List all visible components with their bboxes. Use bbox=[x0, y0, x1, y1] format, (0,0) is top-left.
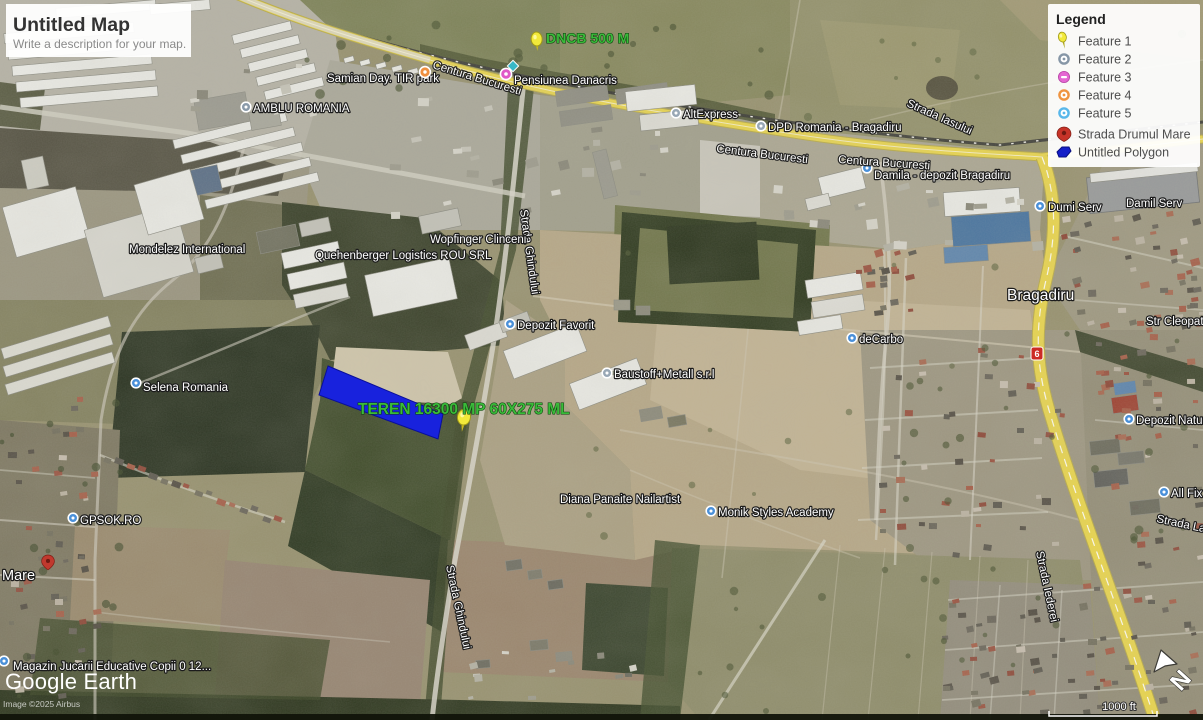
svg-text:1000 ft: 1000 ft bbox=[1102, 701, 1136, 713]
svg-text:TEREN 16300 MP 60X275 ML: TEREN 16300 MP 60X275 ML bbox=[358, 401, 570, 418]
svg-text:Google Earth: Google Earth bbox=[5, 669, 137, 694]
svg-text:6: 6 bbox=[1034, 349, 1039, 359]
svg-text:GPSOK.RO: GPSOK.RO bbox=[80, 515, 141, 527]
svg-text:Damil Serv: Damil Serv bbox=[1126, 198, 1182, 210]
svg-text:Dumi Serv: Dumi Serv bbox=[1048, 202, 1102, 214]
svg-text:Quehenberger Logistics ROU SRL: Quehenberger Logistics ROU SRL bbox=[315, 250, 492, 262]
svg-text:Feature 4: Feature 4 bbox=[1078, 89, 1132, 103]
svg-text:Image ©2025 Airbus: Image ©2025 Airbus bbox=[3, 699, 80, 709]
svg-text:Untitled Map: Untitled Map bbox=[13, 14, 130, 36]
svg-text:Baustoff+Metall s.r.l: Baustoff+Metall s.r.l bbox=[614, 369, 714, 381]
svg-text:All Fix: All Fix bbox=[1171, 488, 1203, 500]
svg-text:Feature 3: Feature 3 bbox=[1078, 71, 1132, 85]
svg-text:Bragadiru: Bragadiru bbox=[1007, 287, 1074, 304]
svg-text:Monik Styles Academy: Monik Styles Academy bbox=[718, 507, 834, 519]
svg-text:Legend: Legend bbox=[1056, 11, 1106, 27]
svg-text:Pensiunea Danacris: Pensiunea Danacris bbox=[514, 75, 617, 87]
svg-text:Strada Drumul Mare: Strada Drumul Mare bbox=[1078, 128, 1191, 142]
svg-text:Untitled Polygon: Untitled Polygon bbox=[1078, 146, 1169, 160]
svg-text:Depozit Favorit: Depozit Favorit bbox=[517, 320, 595, 332]
svg-text:deCarbo: deCarbo bbox=[859, 334, 903, 346]
svg-text:DPD Romania - Bragadiru: DPD Romania - Bragadiru bbox=[768, 122, 902, 134]
svg-text:Feature 1: Feature 1 bbox=[1078, 35, 1132, 49]
svg-text:DNCB 500 M: DNCB 500 M bbox=[546, 30, 629, 46]
svg-text:AltExpress: AltExpress bbox=[683, 109, 738, 121]
svg-text:Depozit Nature: Depozit Nature bbox=[1136, 415, 1203, 427]
svg-text:Str Cleopatra: Str Cleopatra bbox=[1146, 316, 1203, 328]
svg-text:Write a description for your m: Write a description for your map. bbox=[13, 37, 186, 51]
svg-text:Diana Panaite Nailartist: Diana Panaite Nailartist bbox=[560, 494, 681, 506]
svg-text:Wopfinger Clinceni: Wopfinger Clinceni bbox=[430, 234, 526, 246]
svg-text:Mondelez International: Mondelez International bbox=[129, 244, 245, 256]
svg-text:Damila - depozit Bragadiru: Damila - depozit Bragadiru bbox=[874, 170, 1010, 182]
svg-text:Feature 5: Feature 5 bbox=[1078, 107, 1132, 121]
svg-text:AMBLU ROMANIA: AMBLU ROMANIA bbox=[253, 103, 350, 115]
svg-text:Mare: Mare bbox=[2, 568, 35, 584]
svg-text:Feature 2: Feature 2 bbox=[1078, 53, 1132, 67]
svg-text:Selena Romania: Selena Romania bbox=[143, 382, 229, 394]
